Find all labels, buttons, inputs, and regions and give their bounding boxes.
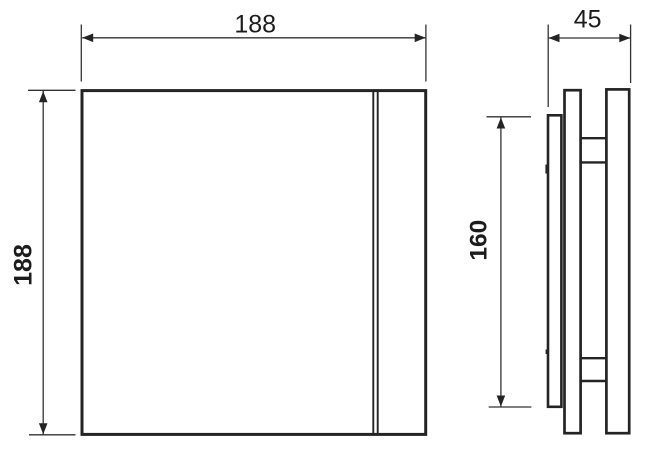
svg-text:45: 45 bbox=[574, 5, 602, 33]
svg-text:160: 160 bbox=[465, 220, 492, 261]
svg-text:188: 188 bbox=[234, 10, 276, 38]
svg-text:188: 188 bbox=[10, 244, 38, 286]
